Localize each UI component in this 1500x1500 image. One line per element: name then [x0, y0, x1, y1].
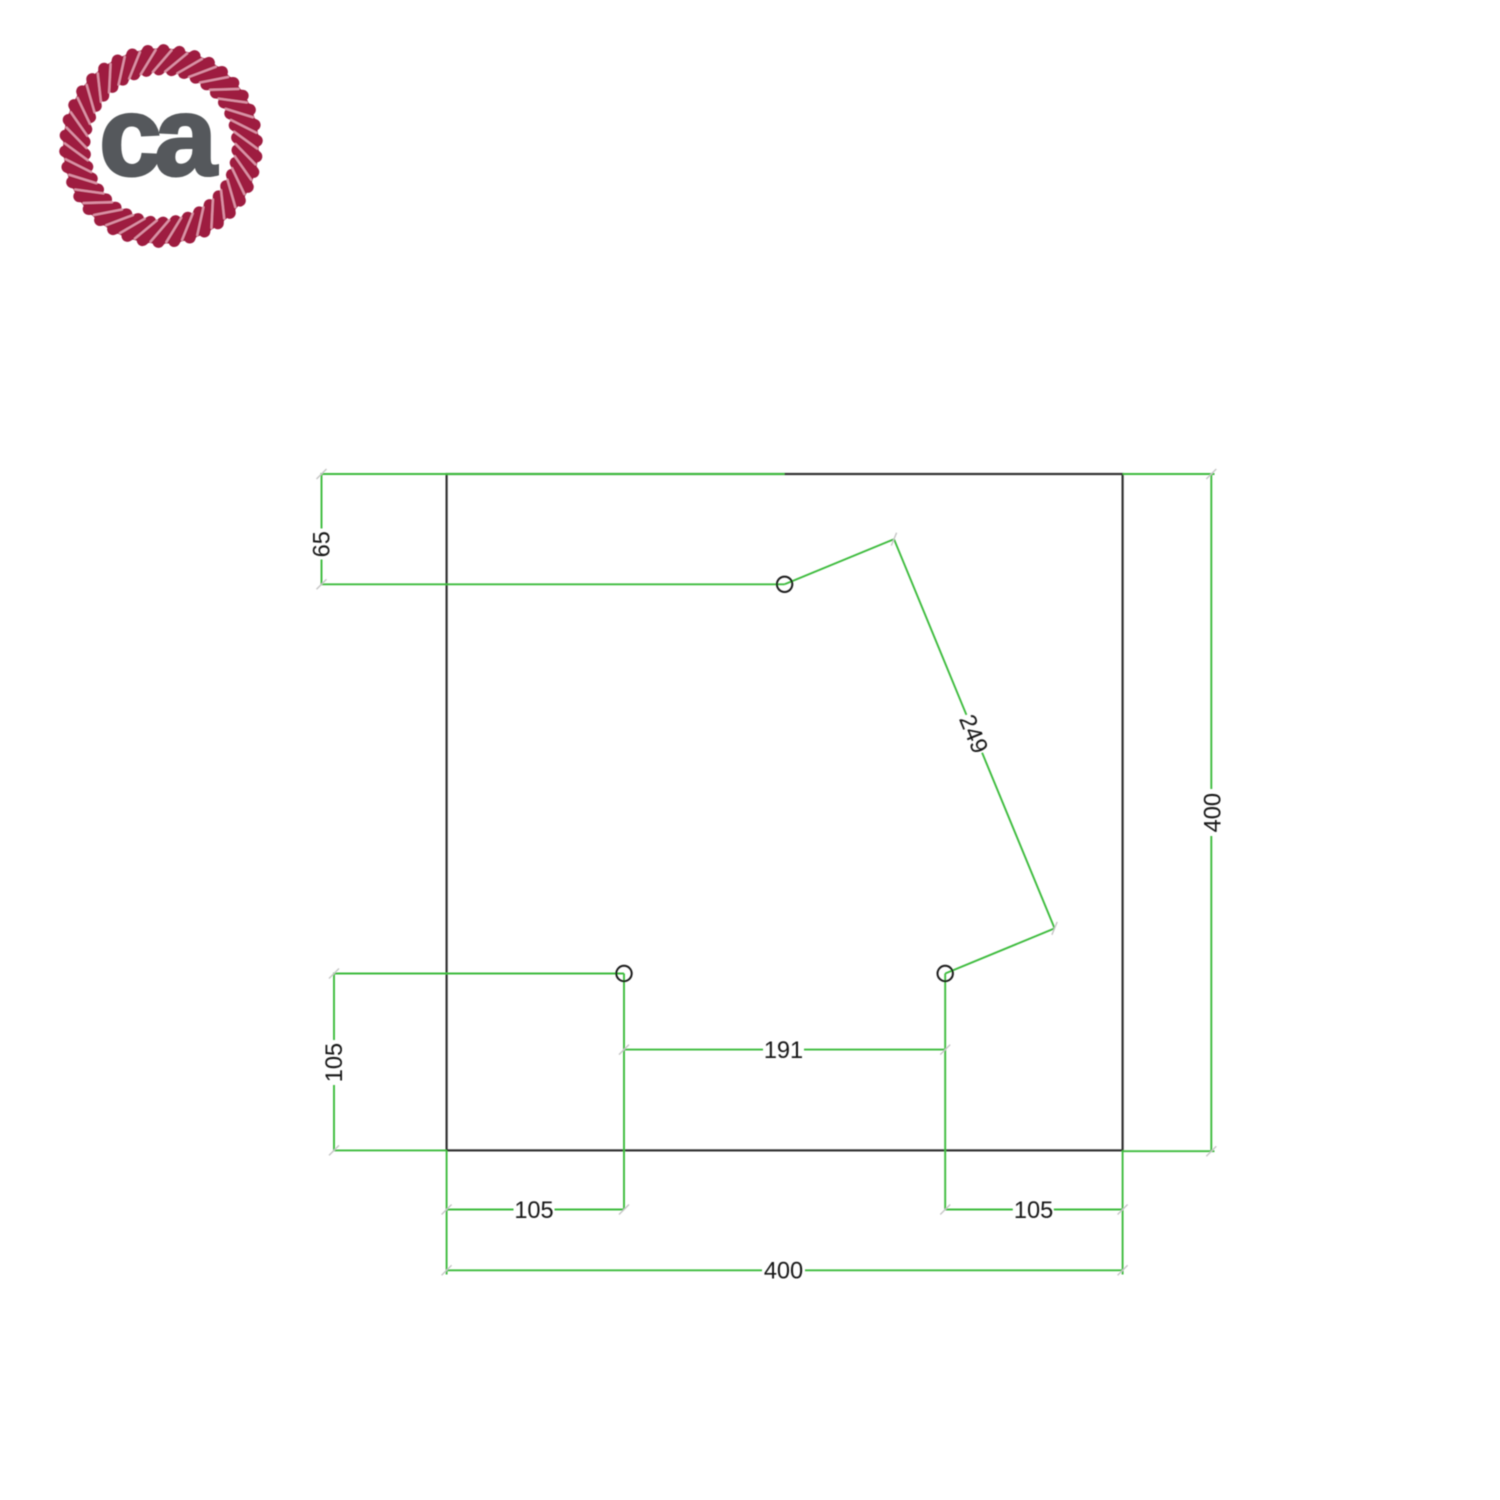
svg-text:191: 191: [764, 1038, 803, 1064]
svg-text:105: 105: [1014, 1198, 1053, 1224]
svg-text:105: 105: [514, 1198, 553, 1224]
svg-text:400: 400: [764, 1259, 803, 1285]
svg-text:249: 249: [953, 711, 992, 757]
svg-text:400: 400: [1201, 793, 1227, 832]
svg-text:105: 105: [322, 1043, 348, 1082]
svg-text:ca: ca: [99, 74, 217, 199]
svg-text:65: 65: [310, 531, 336, 557]
